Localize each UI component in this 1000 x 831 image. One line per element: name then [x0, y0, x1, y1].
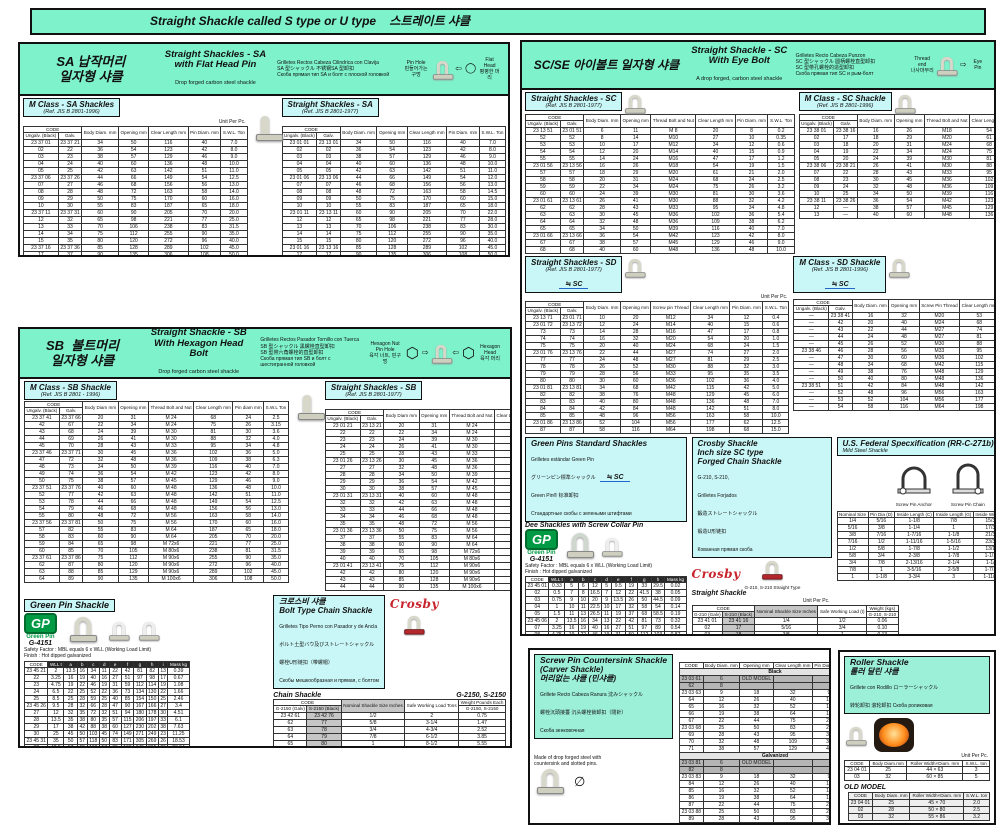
- carver-shackle-icon: [542, 769, 558, 791]
- sd-title-box: Straight Shackles - SD(Ref. JIS B 2801-1…: [525, 256, 622, 293]
- sa-mclass-title-box: M Class - SA Shackles(Ref. JIS B 2801-19…: [23, 98, 120, 117]
- straight-shackle-label: Straight Shackle: [692, 590, 832, 597]
- usfed-table: Nominal SizePin Dia (D)Inside Length (C)…: [837, 511, 996, 581]
- sb-title-kr: SB 볼트머리일자형 샤클: [28, 338, 137, 368]
- top-banner: Straight Shackle called S type or U type…: [30, 8, 986, 35]
- sb-straight-group: Straight Shackles - SB(Ref. JIS B 2801-1…: [325, 381, 512, 591]
- greenpin-standard-table: CODEWLL tabcdefghMass kg23 45 010.335612…: [525, 576, 687, 636]
- sc-mclass-title-box: M Class - SC Shackle(Ref. JIS B 2801-199…: [799, 92, 892, 111]
- banner-title-kr: 스트레이트 샤클: [389, 14, 470, 28]
- greenpin-standard-group: Green Pins Standard Shackles Grilletes e…: [525, 437, 687, 636]
- arrow-left-icon: ⇦: [452, 350, 459, 356]
- crosby-logo: Crosby: [390, 597, 439, 611]
- arrow-left-icon: ⇦: [455, 66, 462, 72]
- shackle-icon: [629, 95, 641, 112]
- greenpin-logo: GP: [525, 529, 558, 550]
- shackle-icon: [437, 61, 448, 78]
- sb-straight-table: CODEBody Diam mmOpening mmThread Bolt an…: [325, 409, 512, 591]
- g2150-label: G-2150, S-2150: [456, 692, 506, 699]
- screw-pin-chain-diagram: [948, 461, 988, 497]
- chain-shackle-label: Chain Shackle: [273, 692, 321, 699]
- sb-bolt-group: 크로스비 샤클Bolt Type Chain Shackle Grilletes…: [273, 595, 506, 748]
- dee-shackles-label: Dee Shackles with Screw Collar Pin: [525, 522, 687, 529]
- greenpin-shackle-icon: [75, 617, 91, 639]
- crosby-g210-table: CODENominal Shackle Size InchesSafe Work…: [692, 605, 899, 636]
- roller-shackle-image: [874, 718, 914, 752]
- sc-straight-group: Straight Shackles - SC(Ref. JIS B 2801-1…: [525, 92, 795, 254]
- banner-title: Straight Shackle called S type or U type…: [150, 14, 470, 29]
- sb-mclass-title-box: M Class - SB Shackle(Ref. JIS B 2801 - 1…: [24, 381, 117, 400]
- sa-straight-group: Straight Shackles - SA(Ref. JIS B 2801-1…: [282, 98, 507, 257]
- sa-section: SA 납작머리일자형 샤클 Straight Shackles - SAwith…: [18, 42, 510, 257]
- carver-left: Screw Pin Countersink Shackle (Carver Sh…: [534, 654, 673, 797]
- sb-multilang: Grilletes Rectos Pasador Tornillo con Tu…: [260, 337, 359, 368]
- sd-straight-group: Straight Shackles - SD(Ref. JIS B 2801-1…: [525, 256, 789, 434]
- sb-straight-title-box: Straight Shackles - SB(Ref. JIS B 2801-1…: [325, 381, 422, 400]
- sd-mclass-table: CODEBody Diam. mmOpening mmScrew Pin Thr…: [793, 299, 996, 411]
- unit-label: Unit Per Pc.: [25, 119, 246, 125]
- sc-pin-diagram: Thread end나사마무리 ⇨ Eye Pin: [910, 54, 986, 76]
- carver-section: Screw Pin Countersink Shackle (Carver Sh…: [528, 648, 831, 825]
- shackle-icon: [629, 259, 641, 276]
- screw-pin-anchor-diagram: [894, 461, 934, 497]
- shackle-icon: [899, 95, 911, 112]
- roller-old-table: CODEBody Diam. mmRoller Width×Diam. mmS.…: [848, 792, 990, 820]
- shackle-icon: [261, 116, 269, 138]
- sb-mclass-group: M Class - SB Shackle(Ref. JIS B 2801 - 1…: [24, 381, 289, 583]
- sb-title-en: Straight Shackle - SBWith Hexagon Head B…: [145, 328, 252, 378]
- crosby-sc-group: Crosby ShackleInch size SC typeForged Ch…: [692, 437, 832, 636]
- sb-pin-diagram: Hexagon Nut Pin Hole육각 너트, 핀구멍 ⬡⇨ ⇦⬡ Hex…: [367, 341, 502, 365]
- shackle-icon: [893, 259, 905, 276]
- unit-label: Unit Per Pc.: [842, 753, 988, 759]
- shackle-icon: [850, 727, 862, 744]
- sb-greenpin-group: Green Pin Shackle GPGreen PinG-4151 Safe…: [24, 595, 267, 748]
- sc-straight-title-box: Straight Shackles - SC(Ref. JIS B 2801-1…: [525, 92, 622, 111]
- unit-label: Unit Per Pc.: [527, 294, 787, 300]
- greenpin-logo-caption: Green Pin: [525, 550, 558, 556]
- sb-header-band: SB 볼트머리일자형 샤클 Straight Shackle - SBWith …: [20, 329, 510, 379]
- screw-pin-anchor-caption: Screw Pin Anchor: [894, 502, 934, 507]
- roller-section: Roller Shackle 롤러 달린 샤클 Grillete con Rod…: [838, 650, 996, 825]
- sc-title-kr: SC/SE 아이볼트 일자형 샤클: [530, 58, 683, 73]
- sb-section: SB 볼트머리일자형 샤클 Straight Shackle - SBWith …: [18, 327, 512, 748]
- arrow-right-icon: ⇨: [960, 62, 967, 68]
- arrow-right-icon: ⇨: [422, 350, 429, 356]
- roller-table: CODEBody Diam.mmRoller Width×Diam. mmS.W…: [844, 760, 990, 781]
- crosby-caption: G-210, S-210 Straight Type: [745, 585, 801, 590]
- unit-label: Unit Per Pc.: [694, 598, 830, 604]
- sc-mclass-table: CODEBody Diam. mmOpening mmThread Bolt a…: [799, 114, 996, 219]
- carver-title-box: Screw Pin Countersink Shackle (Carver Sh…: [534, 654, 673, 739]
- sb-greenpin-title-box: Green Pin Shackle: [24, 599, 115, 612]
- greenpin-title-box: Green Pins Standard Shackles Grilletes e…: [525, 437, 687, 522]
- crosby-sc-title-box: Crosby ShackleInch size SC typeForged Ch…: [692, 437, 832, 558]
- sc-multilang: Grilletes Recto Cabeza PunzonSC 型シャックル 圆…: [796, 53, 902, 78]
- sd-mclass-group: M Class - SD Shackle(Ref. JIS B 2801-199…: [793, 256, 996, 411]
- old-model-label: OLD MODEL: [844, 784, 990, 791]
- sc-section: SC/SE 아이볼트 일자형 샤클 Straight Shackle - SCW…: [520, 40, 996, 636]
- g4151-label: G-4151: [525, 556, 558, 563]
- hexagon-head-icon: ⬡: [462, 346, 475, 361]
- usfed-title-box: U.S. Federal Specxification (RR-C-271b)M…: [837, 437, 996, 456]
- finish-note: Finish : Hot dipped galvanized: [24, 653, 91, 659]
- sa-mclass-group: M Class - SA Shackles(Ref. JIS B 2801-19…: [23, 98, 248, 257]
- carver-right: Unit Per Pc. CODEBody Diam. mmOpening mm…: [679, 654, 831, 825]
- sc-title-en: Straight Shackle - SCWith Eye BoltA drop…: [691, 46, 788, 85]
- sd-mclass-title-box: M Class - SD Shackle(Ref. JIS B 2801-199…: [793, 256, 886, 293]
- crosby-shackle-icon: [766, 560, 778, 577]
- sa-pin-diagram: Pin Hole핀들어가는 구멍 ⇦ ◯ Flat Head평평한 머리: [402, 57, 500, 81]
- greenpin-logo-caption: Green Pin: [24, 634, 57, 640]
- greenpin-shackle-icon: [572, 533, 588, 555]
- usfed-group: U.S. Federal Specxification (RR-C-271b)M…: [837, 437, 996, 581]
- roller-title-box: Roller Shackle 롤러 달린 샤클 Grillete con Rod…: [844, 656, 990, 714]
- hexagon-nut-icon: ⬡: [406, 346, 419, 361]
- bolt-type-title-box: 크로스비 샤클Bolt Type Chain Shackle Grilletes…: [273, 595, 385, 689]
- sb-mclass-table: CODEBody Diam mmOpening mmThread Bolt an…: [24, 401, 289, 583]
- sa-header-band: SA 납작머리일자형 샤클 Straight Shackles - SAwith…: [20, 44, 508, 96]
- shackle-diagram-icon: [143, 622, 155, 639]
- screw-pin-chain-caption: Screw Pin Chain: [948, 502, 988, 507]
- crosby-shackle-icon: [408, 616, 420, 633]
- crosby-logo: Crosby: [692, 567, 741, 581]
- shackle-icon: [435, 345, 445, 362]
- unit-label: Unit Per Pc.: [327, 402, 512, 408]
- g4151-label: G-4151: [24, 640, 57, 647]
- sa-title-kr: SA 납작머리일자형 샤클: [28, 54, 154, 84]
- carver-table: CODEBody Diam. mmOpening mmClear Length …: [679, 662, 831, 825]
- sc-straight-table: CODEBody Diam. mmOpening mmThread Bolt a…: [525, 114, 795, 254]
- shackle-diagram-icon: [606, 537, 618, 554]
- carver-made-note: Made of drop forged steel with countersi…: [534, 755, 624, 767]
- unit-label: Unit Per Pc.: [681, 655, 831, 661]
- shackle-diagram-icon: [113, 622, 125, 639]
- eye-pin-label: Eye Pin: [970, 59, 986, 71]
- sa-straight-title-box: Straight Shackles - SA(Ref. JIS B 2801-1…: [282, 98, 379, 117]
- sb-greenpin-table: CODEWLL tabcdefghiMass kg23 45 21213.516…: [24, 661, 190, 748]
- shackle-icon: [303, 395, 311, 417]
- chain-shackle-table: CODENominal Shackle Size InchesSafe Work…: [273, 699, 506, 748]
- sc-mclass-group: M Class - SC Shackle(Ref. JIS B 2801-199…: [799, 92, 996, 219]
- shackle-icon: [941, 57, 953, 74]
- sd-straight-table: CODEBody Diam. mmOpening mmScrew pin Thr…: [525, 301, 789, 434]
- oval-pin-icon: ◯: [465, 66, 476, 72]
- finish-note: Finish : Hot dipped galvanized: [525, 569, 592, 575]
- sa-multilang: Grilletes Rectos Cabeza Cilindrica con C…: [277, 60, 394, 79]
- greenpin-logo: GP: [24, 613, 57, 634]
- sa-straight-table: CODEBody Diam. mmOpening mmClear Length …: [282, 126, 507, 257]
- sa-mclass-table: CODEBody Diam. mmOpening mmClear Length …: [23, 126, 248, 257]
- sa-title-en: Straight Shackles - SAwith Flat Head Pin…: [162, 50, 269, 89]
- slotted-pin-icon: ∅: [574, 774, 585, 790]
- sc-header-band: SC/SE 아이볼트 일자형 샤클 Straight Shackle - SCW…: [522, 42, 994, 90]
